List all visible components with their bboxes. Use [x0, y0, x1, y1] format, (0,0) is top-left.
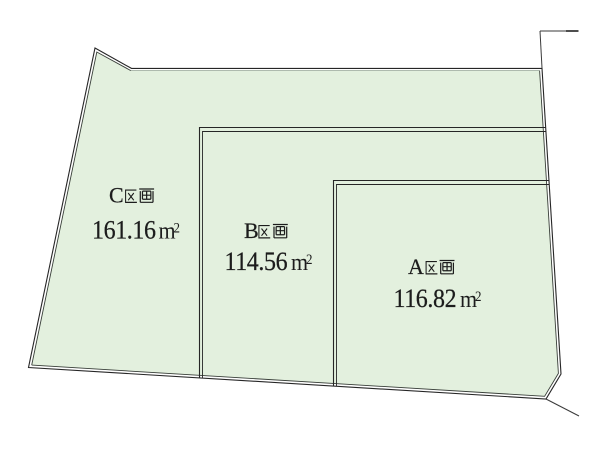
svg-text:2: 2 — [306, 251, 313, 267]
svg-text:2: 2 — [475, 288, 482, 304]
svg-text:116.82: 116.82 — [394, 285, 457, 313]
svg-text:B: B — [244, 218, 259, 243]
svg-text:C: C — [109, 183, 124, 208]
svg-text:161.16: 161.16 — [92, 217, 156, 245]
svg-text:2: 2 — [174, 220, 181, 236]
svg-text:114.56: 114.56 — [225, 248, 288, 276]
svg-text:A: A — [408, 254, 424, 279]
